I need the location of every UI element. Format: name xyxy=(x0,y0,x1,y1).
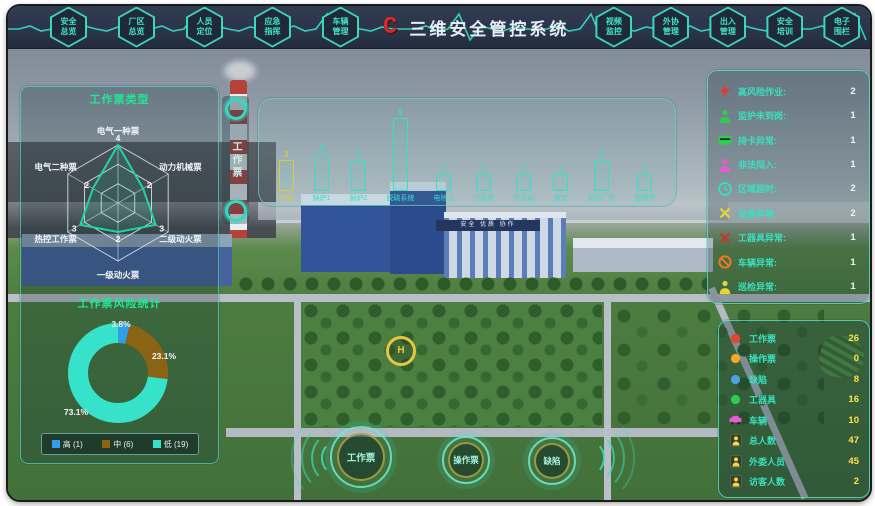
svg-text:3.8%: 3.8% xyxy=(111,319,131,329)
target-ring-icon xyxy=(225,98,247,120)
nav-item-emergency[interactable]: 应急指挥 xyxy=(254,7,291,48)
stat-label: 访客人数 xyxy=(749,475,832,488)
svg-text:热控工作票: 热控工作票 xyxy=(34,234,77,244)
nav-item-e-fence[interactable]: 电子围栏 xyxy=(823,7,860,48)
alarm-value: 1 xyxy=(845,257,861,268)
person-icon xyxy=(718,109,732,123)
alarm-value: 1 xyxy=(845,135,861,146)
card-icon xyxy=(718,133,732,147)
nav-item-video-monitor[interactable]: 视频监控 xyxy=(595,7,632,48)
bar xyxy=(476,174,491,191)
button-label: 缺陷 xyxy=(543,455,560,467)
alarm-item-inspection-abnormal[interactable]: 巡检异常:1 xyxy=(718,280,861,294)
bar-label: 灰库 xyxy=(279,193,293,203)
radar-chart-title: 工作票类型 xyxy=(21,91,218,107)
alarm-label: 工器具异常: xyxy=(738,231,839,244)
alarm-value: 2 xyxy=(845,86,861,97)
stat-value: 0 xyxy=(839,353,859,364)
dot-icon xyxy=(729,373,742,386)
svg-text:二级动火票: 二级动火票 xyxy=(159,234,202,244)
car-icon xyxy=(729,414,742,427)
bar-label: 食堂 xyxy=(554,193,568,203)
no-entry-icon xyxy=(718,255,732,269)
nav-label: 外协 xyxy=(663,17,679,27)
nav-label: 厂区 xyxy=(129,17,145,27)
bar-label: 脱硫系统 xyxy=(386,193,414,203)
defect-button[interactable]: 缺陷 xyxy=(528,437,576,485)
bar xyxy=(279,160,294,191)
stat-label: 车辆 xyxy=(749,414,832,427)
legend-swatch xyxy=(52,440,60,448)
stat-value: 47 xyxy=(839,435,859,446)
bar-value: 4 xyxy=(319,143,323,152)
svg-text:2: 2 xyxy=(84,180,89,190)
svg-text:动力机械票: 动力机械票 xyxy=(159,162,202,172)
left-menu: 安全总览 厂区总览 人员定位 应急指挥 车辆管理 xyxy=(50,7,359,48)
nav-label: 指挥 xyxy=(265,27,281,37)
area-bar: 1围墙外 xyxy=(634,103,655,203)
bar-value: 1 xyxy=(482,164,486,173)
bar-label: 锅炉2 xyxy=(349,193,367,203)
nav-label: 电子 xyxy=(834,17,850,27)
nav-label: 视频 xyxy=(606,17,622,27)
area-bar: 3锅炉2 xyxy=(349,103,367,203)
scene-trees xyxy=(238,272,708,296)
work-ticket-risk-donut-chart: 3.8%23.1%73.1% xyxy=(21,311,216,439)
top-navigation-bar: 安全总览 厂区总览 人员定位 应急指挥 车辆管理 C 三维安全管控系统 视频监控… xyxy=(8,6,870,49)
tools-icon xyxy=(718,206,732,220)
bar xyxy=(594,160,609,191)
alarm-item-high-risk[interactable]: 高风险作业:2 xyxy=(718,84,861,98)
legend-label: 高 (1) xyxy=(63,439,83,450)
nav-item-safety-overview[interactable]: 安全总览 xyxy=(50,7,87,48)
scene-building xyxy=(573,238,713,272)
stat-value: 26 xyxy=(839,333,859,344)
bar-label: 围墙外 xyxy=(634,193,655,203)
nav-label: 管理 xyxy=(720,27,736,37)
target-ring-icon xyxy=(225,200,247,222)
nav-label: 出入 xyxy=(720,17,736,27)
alarm-label: 区域超时: xyxy=(738,182,839,195)
bar-label: 封闭厂外 xyxy=(587,193,615,203)
bar-label: 汽机房 xyxy=(473,193,494,203)
alarm-label: 设备异常: xyxy=(738,207,839,220)
nav-item-contractor-mgmt[interactable]: 外协管理 xyxy=(652,7,689,48)
stat-visitors: 访客人数2 xyxy=(729,475,859,488)
bar xyxy=(393,118,408,191)
alarm-item-illegal-entry[interactable]: 非法闯入:1 xyxy=(718,158,861,172)
bar xyxy=(436,174,451,191)
screen: 安全 优质 协作 H 安全总览 厂区总览 人员定位 应急指挥 车辆管理 C 三维… xyxy=(6,4,872,502)
scene-park xyxy=(302,303,602,427)
alarm-label: 车辆异常: xyxy=(738,256,839,269)
app-logo: C xyxy=(383,14,397,41)
nav-label: 管理 xyxy=(333,27,349,37)
dot-icon xyxy=(729,352,742,365)
nav-label: 管理 xyxy=(663,27,679,37)
clock-icon xyxy=(718,182,732,196)
bar-label: 电除尘 xyxy=(433,193,454,203)
stat-label: 外委人员 xyxy=(749,455,832,468)
button-label: 操作票 xyxy=(453,454,479,466)
area-ticket-bars-panel: 3灰库 4锅炉1 3锅炉2 9脱硫系统 1电除尘 1汽机房 1升压站 1食堂 3… xyxy=(258,98,676,206)
alarm-item-vehicle-abnormal[interactable]: 车辆异常:1 xyxy=(718,255,861,269)
legend-item-medium: 中 (6) xyxy=(102,439,133,450)
alarm-item-device-abnormal[interactable]: 设备异常:2 xyxy=(718,206,861,220)
nav-item-vehicle-mgmt[interactable]: 车辆管理 xyxy=(322,7,359,48)
svg-text:一级动火票: 一级动火票 xyxy=(97,270,140,280)
nav-label: 安全 xyxy=(61,17,77,27)
work-ticket-type-radar-chart: 电气一种票动力机械票二级动火票一级动火票热控工作票电气二种票423232 xyxy=(21,107,216,291)
tab-label: 工作票 xyxy=(228,141,243,180)
alarm-label: 持卡异常: xyxy=(738,134,839,147)
area-bar: 9脱硫系统 xyxy=(386,103,414,203)
device-frame: 安全 优质 协作 H 安全总览 厂区总览 人员定位 应急指挥 车辆管理 C 三维… xyxy=(0,0,875,506)
alarm-item-tool-abnormal[interactable]: 工器具异常:1 xyxy=(718,231,861,245)
stat-value: 45 xyxy=(839,456,859,467)
arc-decoration-right xyxy=(596,420,666,496)
bar-value: 1 xyxy=(442,164,446,173)
area-bar: 1汽机房 xyxy=(473,103,494,203)
work-ticket-tab[interactable]: 工作票 xyxy=(222,96,249,224)
stat-label: 缺陷 xyxy=(749,373,832,386)
svg-text:3: 3 xyxy=(72,223,77,233)
nav-label: 安全 xyxy=(777,17,793,27)
alarm-label: 巡检异常: xyxy=(738,280,839,293)
legend-label: 低 (19) xyxy=(164,439,188,450)
nav-label: 监控 xyxy=(606,27,622,37)
alarm-item-zone-timeout[interactable]: 区域超时:2 xyxy=(718,182,861,196)
nav-label: 总览 xyxy=(61,27,77,37)
stat-value: 10 xyxy=(839,415,859,426)
area-bar: 1升压站 xyxy=(513,103,534,203)
stat-operation-tickets: 操作票0 xyxy=(729,352,859,365)
stat-value: 2 xyxy=(839,476,859,487)
area-bar: 1食堂 xyxy=(553,103,568,203)
alarm-value: 1 xyxy=(845,159,861,170)
button-label: 工作票 xyxy=(347,450,376,464)
svg-text:电气二种票: 电气二种票 xyxy=(34,162,77,172)
nav-label: 定位 xyxy=(197,27,213,37)
svg-text:23.1%: 23.1% xyxy=(152,351,177,361)
bar xyxy=(553,174,568,191)
nav-item-safety-training[interactable]: 安全培训 xyxy=(766,7,803,48)
alarm-value: 2 xyxy=(845,183,861,194)
svg-text:2: 2 xyxy=(116,234,121,244)
person-icon xyxy=(729,455,742,468)
nav-label: 总览 xyxy=(129,27,145,37)
person-icon xyxy=(729,434,742,447)
risk-legend: 高 (1) 中 (6) 低 (19) xyxy=(41,433,199,455)
stat-label: 工器具 xyxy=(749,393,832,406)
alarm-panel: 高风险作业:2 监护未到岗:1 持卡异常:1 非法闯入:1 区域超时:2 设备异… xyxy=(707,70,870,304)
bar-value: 1 xyxy=(522,164,526,173)
bar xyxy=(637,174,652,191)
stat-label: 操作票 xyxy=(749,352,832,365)
area-bar: 3封闭厂外 xyxy=(587,103,615,203)
alarm-label: 监护未到岗: xyxy=(738,109,839,122)
person-icon xyxy=(718,158,732,172)
bar-label: 锅炉1 xyxy=(313,193,331,203)
person-icon xyxy=(729,475,742,488)
svg-text:4: 4 xyxy=(116,133,121,143)
bar-label: 升压站 xyxy=(513,193,534,203)
building-banner: 安全 优质 协作 xyxy=(436,220,540,231)
dot-icon xyxy=(729,332,742,345)
alarm-item-card-abnormal[interactable]: 持卡异常:1 xyxy=(718,133,861,147)
area-bar: 3灰库 xyxy=(279,103,294,203)
area-bar: 1电除尘 xyxy=(433,103,454,203)
stat-work-tickets: 工作票26 xyxy=(729,332,859,345)
bar xyxy=(516,174,531,191)
operation-ticket-button[interactable]: 操作票 xyxy=(442,436,490,484)
alarm-value: 1 xyxy=(845,110,861,121)
lightning-icon xyxy=(718,84,732,98)
page-title: 三维安全管控系统 xyxy=(409,15,569,40)
svg-text:2: 2 xyxy=(147,180,152,190)
dot-icon xyxy=(729,393,742,406)
stat-value: 8 xyxy=(839,374,859,385)
work-ticket-panel: 工作票类型 电气一种票动力机械票二级动火票一级动火票热控工作票电气二种票4232… xyxy=(20,86,219,464)
nav-label: 应急 xyxy=(265,17,281,27)
donut-chart-title: 工作票风险统计 xyxy=(21,295,218,311)
work-ticket-button[interactable]: 工作票 xyxy=(330,426,392,488)
nav-item-personnel-location[interactable]: 人员定位 xyxy=(186,7,223,48)
bar-value: 1 xyxy=(643,164,647,173)
alarm-value: 1 xyxy=(845,281,861,292)
bar-value: 1 xyxy=(559,164,563,173)
brand: C 三维安全管控系统 xyxy=(383,14,569,41)
nav-item-plant-overview[interactable]: 厂区总览 xyxy=(118,7,155,48)
stat-vehicles: 车辆10 xyxy=(729,414,859,427)
bar-value: 3 xyxy=(356,150,360,159)
bar xyxy=(351,160,366,191)
svg-text:3: 3 xyxy=(159,223,164,233)
right-menu: 视频监控 外协管理 出入管理 安全培训 电子围栏 安防设备 xyxy=(595,7,872,48)
nav-label: 车辆 xyxy=(333,17,349,27)
stat-label: 总人数 xyxy=(749,434,832,447)
nav-item-access-mgmt[interactable]: 出入管理 xyxy=(709,7,746,48)
nav-label: 人员 xyxy=(197,17,213,27)
stat-label: 工作票 xyxy=(749,332,832,345)
bar-value: 3 xyxy=(284,150,288,159)
legend-item-low: 低 (19) xyxy=(153,439,188,450)
alarm-value: 1 xyxy=(845,232,861,243)
stat-contractor-people: 外委人员45 xyxy=(729,455,859,468)
bar-value: 9 xyxy=(398,108,402,117)
stat-value: 16 xyxy=(839,394,859,405)
stat-tools: 工器具16 xyxy=(729,393,859,406)
site-stats-panel: 工作票26 操作票0 缺陷8 工器具16 车辆10 总人数47 外委人员45 访… xyxy=(718,320,870,498)
alarm-label: 非法闯入: xyxy=(738,158,839,171)
legend-label: 中 (6) xyxy=(113,439,133,450)
svg-text:73.1%: 73.1% xyxy=(64,407,89,417)
bar-value: 3 xyxy=(599,150,603,159)
stat-total-people: 总人数47 xyxy=(729,434,859,447)
nav-label: 培训 xyxy=(777,27,793,37)
alarm-label: 高风险作业: xyxy=(738,85,839,98)
person-icon xyxy=(718,280,732,294)
arc-decoration-left xyxy=(260,420,330,496)
bar xyxy=(314,153,329,191)
tools-icon xyxy=(718,231,732,245)
bottom-action-zone: 工作票 操作票 缺陷 xyxy=(270,420,670,496)
stat-defects: 缺陷8 xyxy=(729,373,859,386)
legend-item-high: 高 (1) xyxy=(52,439,83,450)
legend-swatch xyxy=(102,440,110,448)
alarm-item-supervisor-absent[interactable]: 监护未到岗:1 xyxy=(718,109,861,123)
alarm-value: 2 xyxy=(845,208,861,219)
legend-swatch xyxy=(153,440,161,448)
area-bar: 4锅炉1 xyxy=(313,103,331,203)
nav-label: 围栏 xyxy=(834,27,850,37)
helipad: H xyxy=(386,336,416,366)
